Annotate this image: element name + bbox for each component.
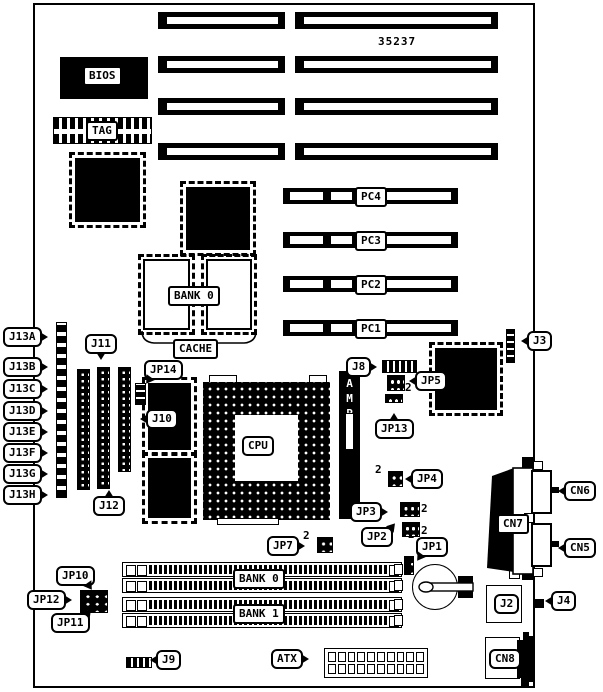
atx-power-connector: [324, 648, 428, 678]
j13a-label: J13A: [3, 327, 42, 347]
amp-connector: AMP: [339, 371, 360, 519]
j13d-label: J13D: [3, 401, 42, 421]
j8-label: J8: [346, 357, 371, 377]
j4-label: J4: [551, 591, 576, 611]
j8-pin-header: [382, 360, 417, 373]
qfp-chip: [75, 158, 140, 222]
isa-slot: [295, 12, 498, 29]
isa-slot: [158, 143, 285, 160]
j13f-label: J13F: [3, 443, 42, 463]
jp1-label: JP1: [416, 537, 448, 557]
jp5-label: JP5: [415, 371, 447, 391]
isa-slot: [295, 98, 498, 115]
cache-label: CACHE: [173, 339, 218, 359]
cn6-port: [531, 470, 552, 514]
j13e-label: J13E: [3, 422, 42, 442]
battery-clip: [415, 572, 477, 602]
jp4-pin2: 2: [375, 463, 382, 476]
simm-latch: [394, 580, 403, 591]
j3-pin-header: [506, 329, 515, 363]
jp2-label: JP2: [361, 527, 393, 547]
jp10-label: JP10: [56, 566, 95, 586]
j13-pin-header: [56, 322, 67, 498]
isa-slot: [158, 98, 285, 115]
isa-slot: [295, 143, 498, 160]
j13c-label: J13C: [3, 379, 42, 399]
pc2-label: PC2: [355, 275, 387, 295]
simm-latch: [394, 599, 403, 610]
jp3-pin2: 2: [421, 502, 428, 515]
jp13-jumper: [385, 394, 403, 403]
simm-latch: [394, 564, 403, 575]
jp5-jumper: [387, 375, 405, 391]
jp2-pin2: 2: [421, 524, 428, 537]
jp14-label: JP14: [144, 360, 183, 380]
jp7-pin2: 2: [303, 529, 310, 542]
bank1-memory-label: BANK 1: [233, 604, 285, 624]
cn8-label: CN8: [489, 649, 521, 669]
pc1-label: PC1: [355, 319, 387, 339]
jp7-label: JP7: [267, 536, 299, 556]
j13h-label: J13H: [3, 485, 42, 505]
jp1-pin2: 2: [408, 528, 415, 541]
atx-label: ATX: [271, 649, 303, 669]
j10-label: J10: [146, 409, 178, 429]
cn6-label: CN6: [564, 481, 596, 501]
jp3-jumper: [400, 502, 420, 517]
cpu-socket-tab: [217, 518, 279, 525]
simm-latch: [394, 615, 403, 626]
motherboard-layout-diagram: 35237 BIOS TAG BANK 0 CACHE PC4 PC3 PC2 …: [0, 0, 603, 692]
jp5-pin2: 2: [405, 381, 412, 394]
j10-pin-header: [118, 367, 131, 472]
j13b-label: J13B: [3, 357, 42, 377]
isa-slot: [158, 56, 285, 73]
j2-label: J2: [494, 594, 519, 614]
part-number: 35237: [378, 35, 416, 48]
j13g-label: J13G: [3, 464, 42, 484]
cn5-port: [531, 523, 552, 567]
bank0-memory-label: BANK 0: [233, 569, 285, 589]
j12-pin-header: [77, 369, 90, 490]
jp4-label: JP4: [411, 469, 443, 489]
isa-slot: [158, 12, 285, 29]
jp7-jumper: [317, 537, 333, 553]
jp13-label: JP13: [375, 419, 414, 439]
jp11-label: JP11: [51, 613, 90, 633]
jp12-label: JP12: [27, 590, 66, 610]
bios-label: BIOS: [83, 66, 122, 86]
j11-label: J11: [85, 334, 117, 354]
qfp-chip: [148, 458, 191, 518]
isa-slot: [295, 56, 498, 73]
jp3-label: JP3: [350, 502, 382, 522]
j9-label: J9: [156, 650, 181, 670]
cn5-label: CN5: [564, 538, 596, 558]
cpu-label: CPU: [242, 436, 274, 456]
qfp-chip: [186, 187, 250, 250]
pc3-label: PC3: [355, 231, 387, 251]
j3-label: J3: [527, 331, 552, 351]
tag-label: TAG: [86, 121, 118, 141]
pc4-label: PC4: [355, 187, 387, 207]
cache-bank0-label: BANK 0: [168, 286, 220, 306]
j11-pin-header: [97, 367, 110, 489]
j12-label: J12: [93, 496, 125, 516]
cn7-label: CN7: [497, 514, 529, 534]
